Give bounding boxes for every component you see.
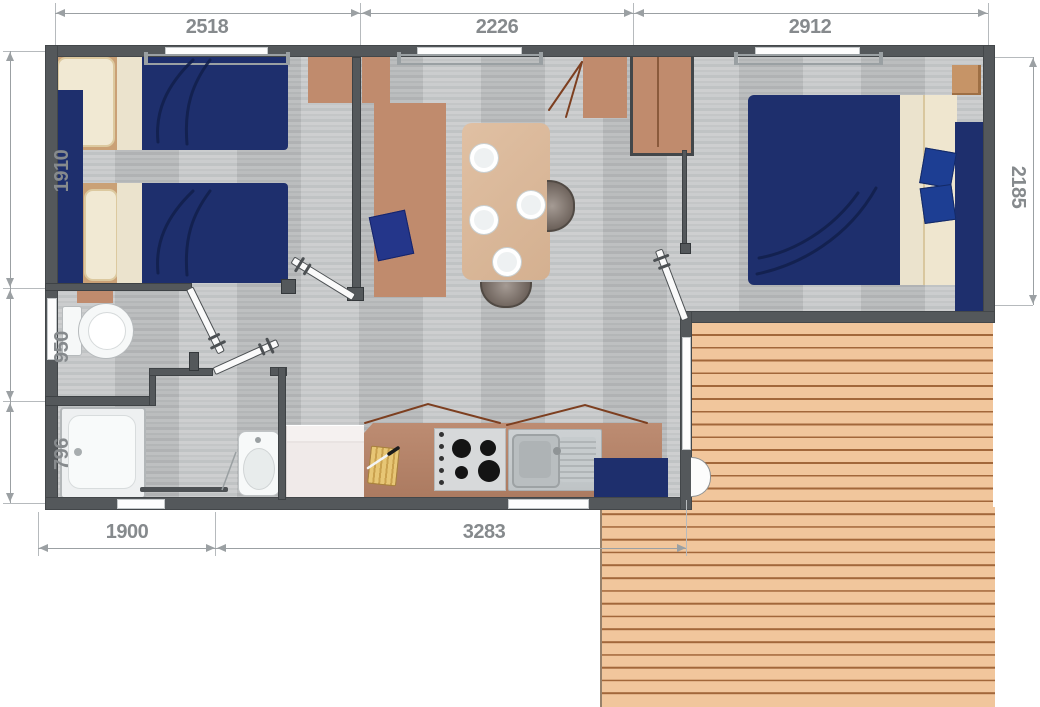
kitchen-end-unit xyxy=(594,458,668,500)
burner-icon xyxy=(455,466,468,479)
dim-bottom-1: 1900 xyxy=(77,522,177,542)
dimension-line-left xyxy=(10,51,11,503)
curtain-rail-icon xyxy=(400,54,540,65)
sink-basin-inner xyxy=(519,441,551,478)
pillow-icon xyxy=(84,189,118,281)
burner-icon xyxy=(478,460,500,482)
dim-top-1: 2518 xyxy=(157,17,257,37)
shelf-icon xyxy=(77,291,113,303)
hob-knob xyxy=(439,432,444,437)
wall-bathroom-top xyxy=(149,368,213,376)
extension-line xyxy=(633,3,634,45)
tall-cabinet-icon xyxy=(362,52,390,103)
plate-icon xyxy=(492,247,522,277)
deck-lower xyxy=(600,507,995,707)
cabinet-icon xyxy=(583,53,627,118)
dimension-line-bottom xyxy=(38,548,686,549)
wall-toilet-bottom xyxy=(45,396,155,406)
wall-bedroom1-living xyxy=(352,57,361,298)
wall-bedroom1-bottom xyxy=(45,283,192,291)
tap-icon xyxy=(255,437,261,443)
window-icon xyxy=(117,499,165,509)
toilet-seat xyxy=(88,312,126,350)
floor-plan: 2518 2226 2912 1910 950 796 1900 3283 21… xyxy=(0,0,1040,707)
extension-line xyxy=(686,500,687,556)
tap-icon xyxy=(553,447,561,455)
wardrobe-divider xyxy=(657,53,659,147)
wall-right xyxy=(983,45,995,323)
twin-bed-sheet-2 xyxy=(117,183,142,283)
dim-top-2: 2226 xyxy=(447,17,547,37)
shower-screen xyxy=(140,487,228,492)
plate-icon xyxy=(469,143,499,173)
extension-line xyxy=(215,512,216,556)
dim-right-1: 2185 xyxy=(1008,157,1028,217)
dimension-line-right xyxy=(1033,57,1034,305)
window-icon xyxy=(508,499,589,509)
twin-bed-sheet-1 xyxy=(117,52,142,150)
burner-icon xyxy=(452,439,471,458)
hob-knob xyxy=(439,444,444,449)
dimension-line-top xyxy=(55,13,988,14)
curtain-rail-icon xyxy=(737,54,880,65)
washbasin-bowl xyxy=(243,448,275,490)
dim-left-2: 950 xyxy=(52,317,72,377)
pillow-icon xyxy=(919,147,957,188)
wardrobe xyxy=(630,50,694,156)
cabinet-icon xyxy=(308,53,357,103)
dim-bottom-2: 3283 xyxy=(434,522,534,542)
bench-sofa-icon xyxy=(374,103,446,297)
door-jamb xyxy=(189,352,199,371)
twin-bed-blanket-2 xyxy=(142,183,288,283)
extension-line xyxy=(988,3,989,45)
hob-knob xyxy=(439,480,444,485)
fridge-icon xyxy=(285,425,364,501)
deck-upper xyxy=(690,323,993,507)
wall-bedroom2-bottom xyxy=(680,311,995,323)
pillow-icon xyxy=(920,184,957,224)
hob-knob xyxy=(439,468,444,473)
hob-icon xyxy=(434,428,506,491)
double-bed-blanket xyxy=(748,95,900,285)
plate-icon xyxy=(516,190,546,220)
dim-left-3: 796 xyxy=(52,424,72,484)
extension-line xyxy=(995,57,1033,58)
hob-knob xyxy=(439,456,444,461)
curtain-rail-icon xyxy=(147,54,287,65)
extension-line xyxy=(3,503,45,504)
cutting-board-icon xyxy=(367,446,400,487)
shower-drain xyxy=(74,448,82,456)
burner-icon xyxy=(480,440,496,456)
sink-drainer xyxy=(560,437,596,482)
wall-bedroom2-stub xyxy=(682,150,687,250)
wall-cap xyxy=(680,243,691,254)
dim-left-1: 1910 xyxy=(52,141,72,201)
extension-line xyxy=(360,3,361,45)
extension-line xyxy=(995,305,1033,306)
wall-bathroom-right xyxy=(278,367,286,500)
wall-cap xyxy=(281,279,296,294)
dim-top-3: 2912 xyxy=(760,17,860,37)
nightstand-icon xyxy=(952,65,981,95)
bed-runner-icon xyxy=(955,122,985,317)
twin-bed-blanket-1 xyxy=(142,52,288,150)
plate-icon xyxy=(469,205,499,235)
deck-door-opening xyxy=(682,337,691,450)
